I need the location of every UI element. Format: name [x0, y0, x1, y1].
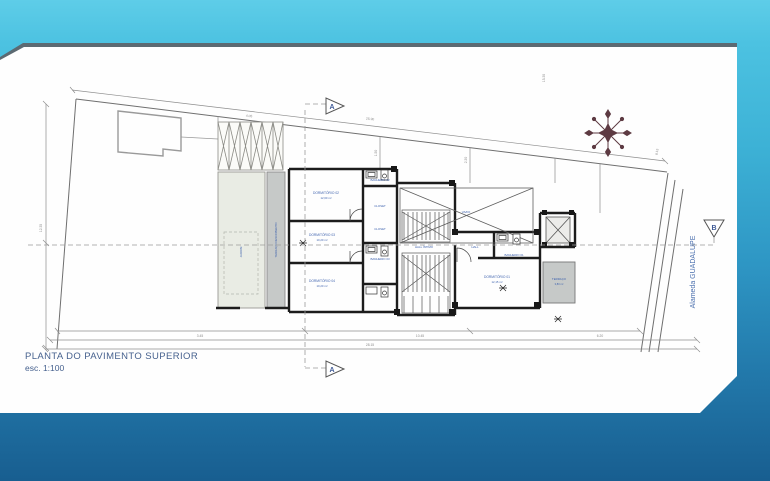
scale-label: esc. 1:100 — [25, 363, 64, 373]
room-label: BANHEIRO 03 — [370, 257, 390, 261]
pergola-lattice — [218, 122, 283, 170]
room-label: JARDIM — [239, 246, 243, 257]
dim-label: 3.45 — [197, 334, 204, 338]
room-area: 12,60 m² — [320, 196, 331, 200]
room-label: BANHEIRO 01 — [504, 253, 524, 257]
dim-label: 2.30 — [464, 157, 468, 164]
room-label: HALL ÍNTIMO — [415, 245, 434, 249]
presentation-slide: 25.90 4.05 1.50 2.30 15.30 8.15 3.45 10.… — [0, 0, 770, 481]
slide-canvas: 25.90 4.05 1.50 2.30 15.30 8.15 3.45 10.… — [0, 0, 770, 481]
dim-label: 4.05 — [246, 114, 253, 119]
room-label: VAZIO — [462, 210, 471, 214]
section-marker-b-label: B — [711, 225, 716, 232]
room-area: 10,20 m² — [316, 284, 327, 288]
dim-label: 1.50 — [374, 150, 378, 157]
dim-label: 6.20 — [597, 334, 604, 338]
dim-label: 10.45 — [416, 334, 424, 338]
room-label: TERRAÇO — [552, 277, 567, 281]
section-marker-a-top: A — [329, 104, 334, 111]
shaft-hatch — [546, 217, 570, 243]
room-label: CLOSET — [374, 227, 386, 231]
dim-label: 12.35 — [39, 224, 43, 232]
room-area: 12,15 m² — [491, 280, 502, 284]
room-label: BANHEIRO 02 — [370, 178, 390, 182]
room-label: TERRAÇO DESCOBERTO — [274, 222, 278, 258]
room-label: HALL — [471, 245, 479, 249]
section-marker-a-bottom: A — [329, 367, 334, 374]
room-area: 3,80 m² — [555, 282, 564, 286]
room-area: 10,20 m² — [316, 238, 327, 242]
room-label: DORMITÓRIO 03 — [309, 232, 335, 237]
room-label: DORMITÓRIO 04 — [309, 278, 335, 283]
room-label: DORMITÓRIO 02 — [313, 190, 339, 195]
street-label: Alameda GUADALUPE — [690, 235, 697, 308]
room-label: DORMITÓRIO 01 — [484, 274, 510, 279]
terrace-left — [216, 172, 290, 308]
page-title: PLANTA DO PAVIMENTO SUPERIOR — [25, 351, 198, 362]
dim-label: 15.30 — [542, 74, 546, 82]
dim-label: 28.15 — [366, 343, 374, 347]
room-label: CLOSET — [374, 204, 386, 208]
